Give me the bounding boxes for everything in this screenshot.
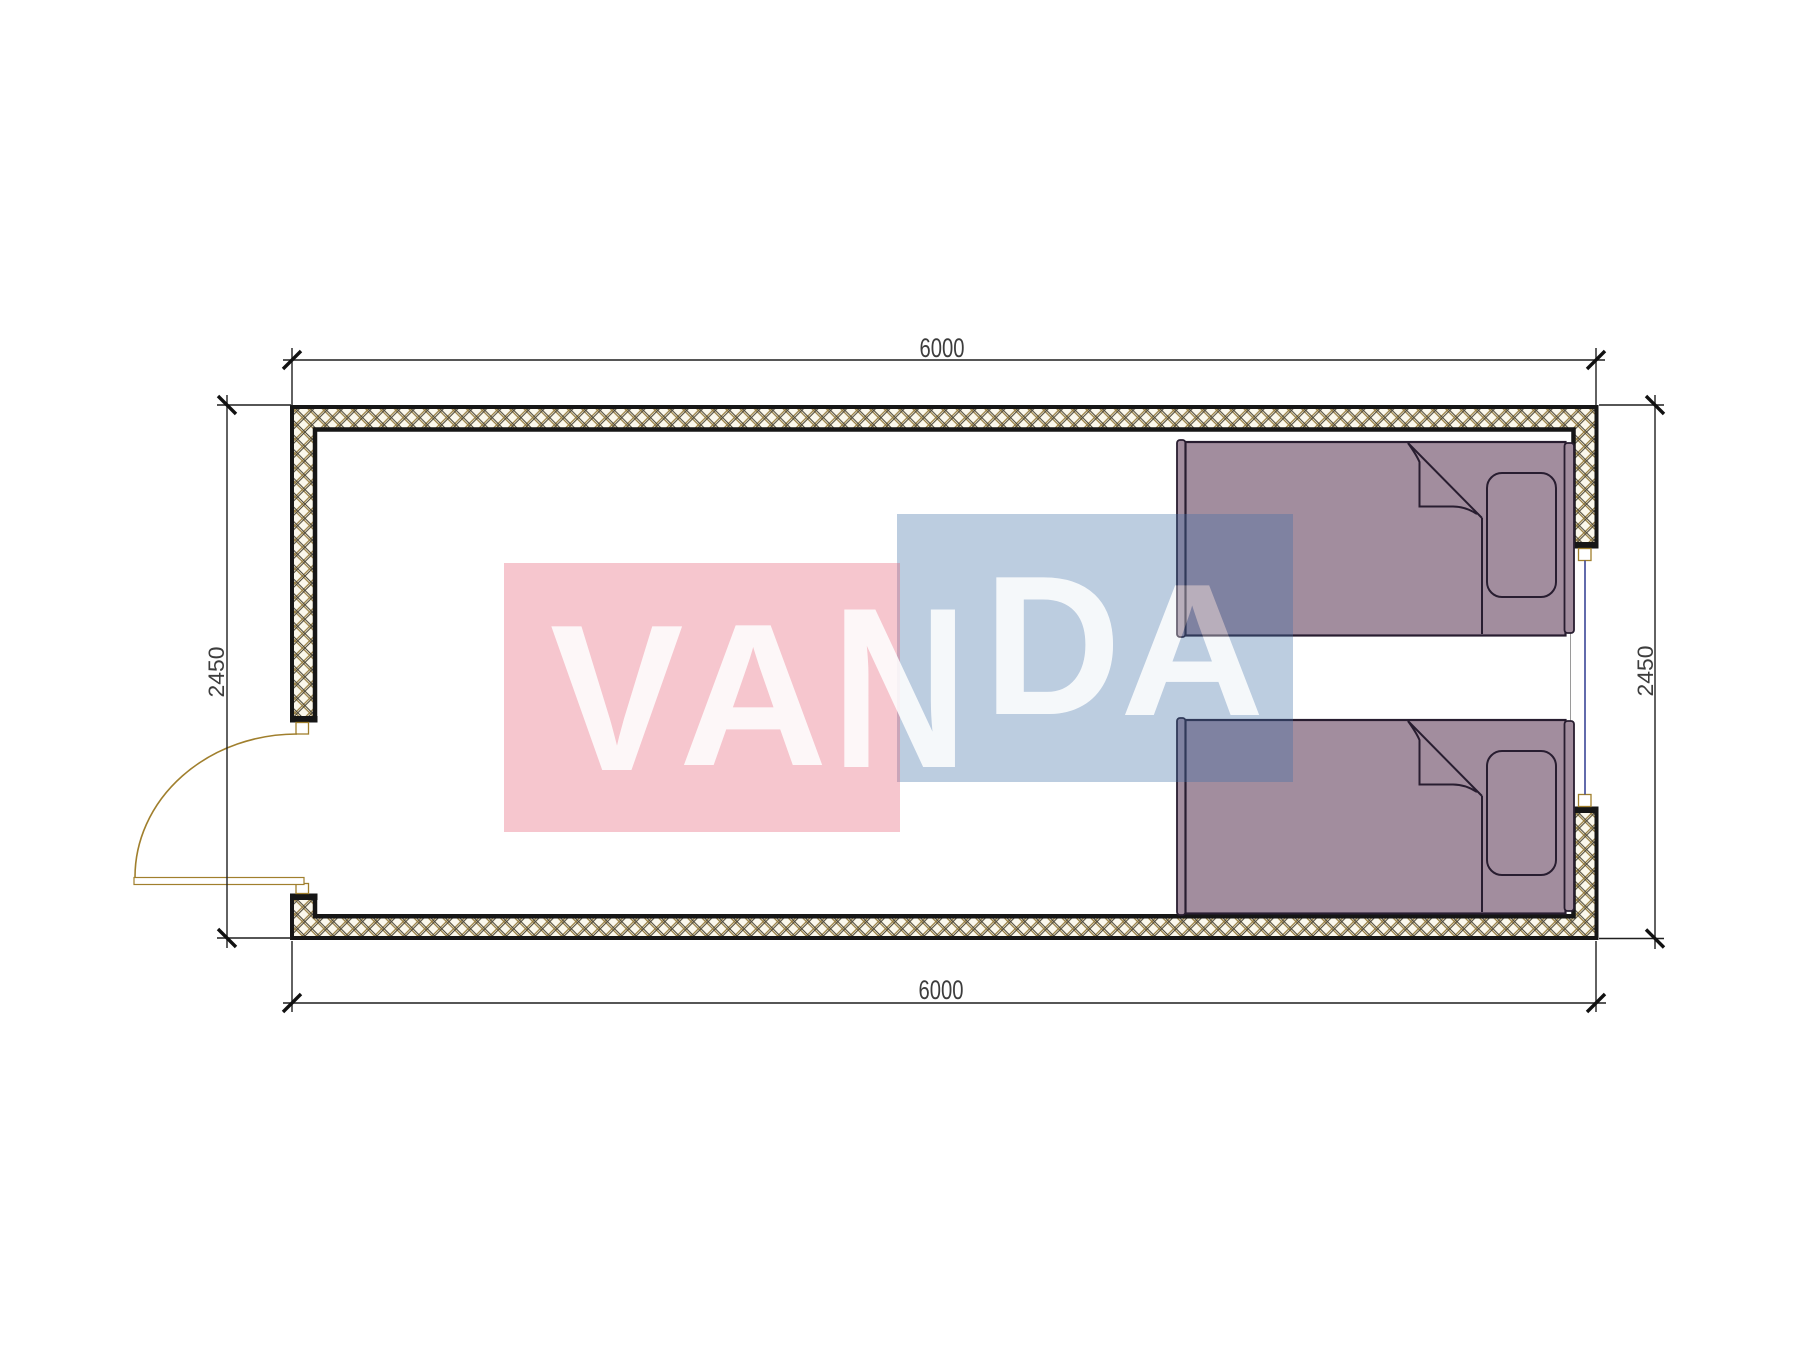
svg-text:6000: 6000: [920, 333, 965, 363]
svg-text:2450: 2450: [204, 647, 229, 698]
svg-text:6000: 6000: [919, 975, 964, 1005]
svg-text:2450: 2450: [1633, 646, 1658, 697]
